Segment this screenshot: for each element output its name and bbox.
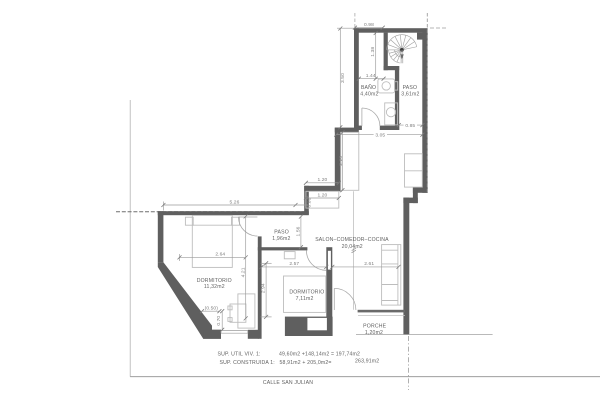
svg-text:1.20: 1.20: [317, 177, 327, 183]
svg-text:1.44: 1.44: [366, 73, 376, 79]
svg-text:1,96m2: 1,96m2: [272, 236, 290, 242]
svg-text:1.56: 1.56: [295, 226, 301, 236]
svg-text:49,60m2 +148,14m2 = 197,74m2: 49,60m2 +148,14m2 = 197,74m2: [279, 351, 360, 357]
svg-text:11,32m2: 11,32m2: [204, 284, 225, 290]
svg-text:2.61: 2.61: [364, 261, 374, 267]
svg-text:DORMITORIO: DORMITORIO: [197, 278, 232, 284]
svg-text:20,04m2: 20,04m2: [342, 244, 363, 250]
svg-text:SALON–COMEDOR–COCINA: SALON–COMEDOR–COCINA: [315, 237, 389, 243]
svg-text:2.57: 2.57: [289, 261, 299, 267]
svg-text:0.98: 0.98: [364, 22, 374, 28]
svg-text:4,40m2: 4,40m2: [360, 92, 378, 98]
svg-text:3.05: 3.05: [375, 133, 385, 139]
svg-text:7,11m2: 7,11m2: [296, 296, 314, 302]
svg-text:BAÑO: BAÑO: [361, 84, 376, 91]
svg-text:SUP. UTIL VIV. 1:: SUP. UTIL VIV. 1:: [218, 351, 261, 357]
svg-text:(0.50): (0.50): [205, 305, 219, 311]
svg-text:DORMITORIO: DORMITORIO: [289, 289, 324, 295]
svg-text:2.64: 2.64: [215, 252, 225, 258]
svg-text:2.94: 2.94: [261, 283, 267, 293]
svg-text:SUP. CONSTRUIDA 1:: SUP. CONSTRUIDA 1:: [220, 360, 275, 366]
svg-text:2.20: 2.20: [338, 156, 344, 166]
svg-text:PASO: PASO: [403, 85, 418, 91]
svg-text:0.85: 0.85: [405, 123, 415, 129]
svg-text:5.26: 5.26: [230, 199, 240, 205]
svg-text:PORCHE: PORCHE: [363, 324, 386, 330]
svg-text:1.20: 1.20: [317, 192, 327, 198]
svg-text:263,91m2: 263,91m2: [355, 359, 379, 365]
svg-text:0.88: 0.88: [307, 197, 313, 207]
svg-text:4.21: 4.21: [240, 267, 246, 277]
svg-text:1.38: 1.38: [370, 47, 376, 57]
svg-text:PASO: PASO: [274, 229, 289, 235]
svg-text:CALLE SAN JULIAN: CALLE SAN JULIAN: [263, 380, 313, 386]
svg-text:58,91m2 + 205,0m2=: 58,91m2 + 205,0m2=: [280, 360, 332, 366]
svg-text:3,61m2: 3,61m2: [401, 92, 419, 98]
svg-text:1,20m2: 1,20m2: [365, 330, 383, 336]
svg-text:0.70: 0.70: [216, 316, 222, 326]
svg-text:3.50: 3.50: [340, 73, 346, 83]
